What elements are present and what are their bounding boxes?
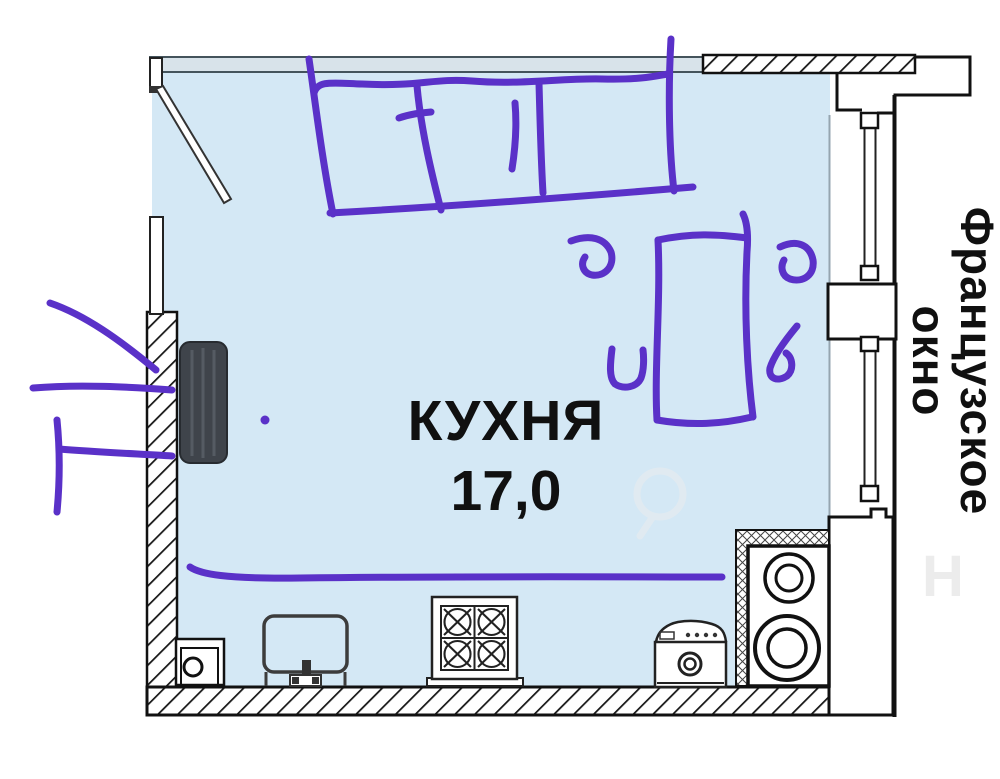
top-right-wall [703,55,915,73]
left-wall-stub-upper [150,58,162,90]
window-sill-block [829,509,893,715]
annotation-dot [261,416,270,425]
water-heater [176,639,224,685]
room-interior [152,70,830,687]
french-window-label-line1: Французское [952,191,1000,531]
bottom-wall [147,687,869,715]
french-window-label-line2: окно [904,191,952,531]
ventilation-duct [736,530,829,686]
faucet [302,660,311,675]
radiator [180,342,227,463]
floor-plan-page: { "labels": { "room_name": "КУХНЯ", "roo… [0,0,1000,779]
washing-machine [655,621,726,687]
left-wall-stub-lower [150,217,163,314]
top-wall [150,57,703,72]
stove [427,597,523,686]
french-window-label: Французское окно [904,191,1000,531]
svg-text:Н: Н [922,544,964,609]
window-mullion [828,284,896,339]
room-area-label: 17,0 [380,458,632,524]
room-name-label: КУХНЯ [380,388,632,454]
